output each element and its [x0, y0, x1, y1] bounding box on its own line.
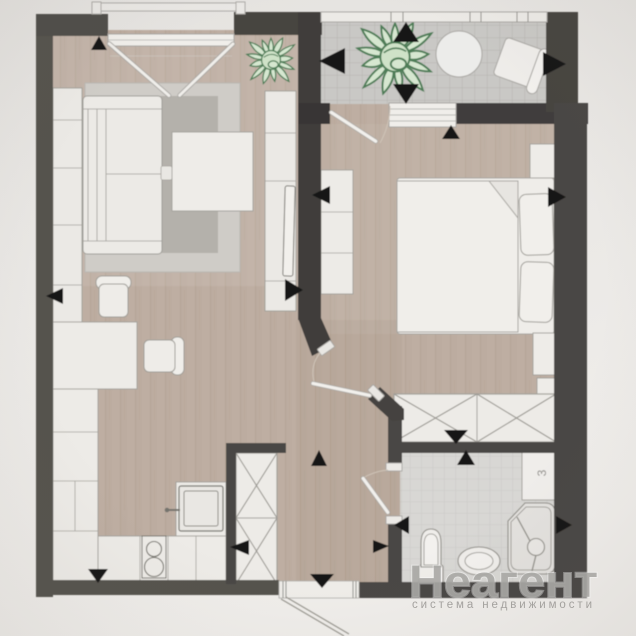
svg-text:система недвижимости: система недвижимости: [412, 599, 592, 611]
